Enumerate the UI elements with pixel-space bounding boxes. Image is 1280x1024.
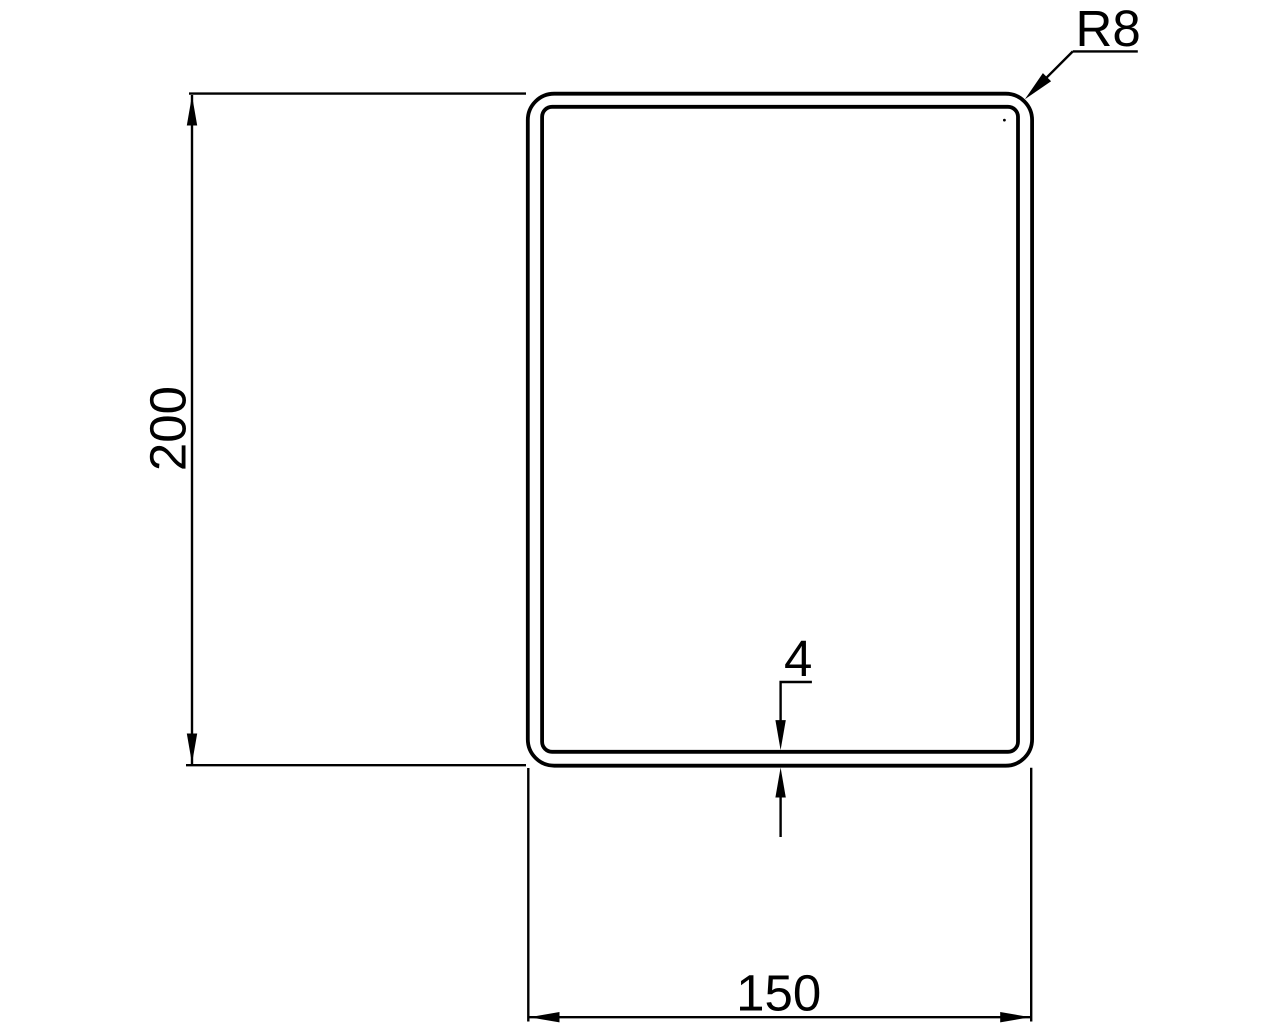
svg-text:4: 4 — [784, 630, 812, 687]
svg-text:R8: R8 — [1076, 0, 1141, 57]
svg-text:200: 200 — [140, 386, 197, 471]
svg-text:150: 150 — [736, 965, 821, 1022]
